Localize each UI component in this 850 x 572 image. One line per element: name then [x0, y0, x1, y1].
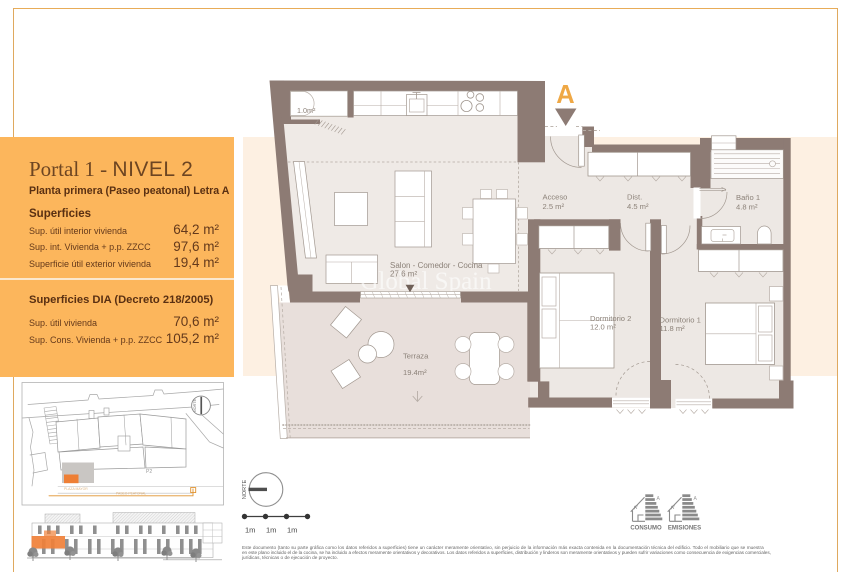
- svg-text:Baño 1: Baño 1: [736, 193, 760, 202]
- svg-text:P2: P2: [146, 469, 152, 475]
- svg-text:EMISIONES: EMISIONES: [668, 526, 701, 532]
- svg-text:Global Spain: Global Spain: [360, 268, 492, 295]
- svg-text:19.4m²: 19.4m²: [403, 368, 427, 377]
- svg-text:NORTE: NORTE: [242, 479, 248, 499]
- svg-text:Dist.: Dist.: [627, 193, 642, 202]
- svg-text:1m: 1m: [266, 526, 276, 535]
- svg-text:A: A: [556, 81, 574, 109]
- svg-text:Terraza: Terraza: [403, 352, 429, 361]
- svg-text:PASEO PEATONAL: PASEO PEATONAL: [116, 492, 146, 496]
- svg-text:1m: 1m: [245, 526, 255, 535]
- svg-text:11.8 m²: 11.8 m²: [660, 324, 686, 333]
- svg-text:NORTE: NORTE: [193, 398, 197, 412]
- svg-text:A: A: [694, 496, 698, 502]
- svg-text:12.0 m²: 12.0 m²: [590, 323, 616, 332]
- svg-text:A: A: [657, 496, 661, 502]
- svg-text:1m: 1m: [287, 526, 297, 535]
- svg-text:2.5 m²: 2.5 m²: [543, 202, 565, 211]
- svg-text:PLAZA MAYOR: PLAZA MAYOR: [64, 487, 88, 491]
- svg-text:1.0m²: 1.0m²: [297, 106, 316, 115]
- svg-text:4.8 m²: 4.8 m²: [736, 203, 758, 212]
- svg-text:CONSUMO: CONSUMO: [630, 526, 662, 532]
- svg-text:Acceso: Acceso: [543, 193, 568, 202]
- svg-text:4.5 m²: 4.5 m²: [627, 202, 649, 211]
